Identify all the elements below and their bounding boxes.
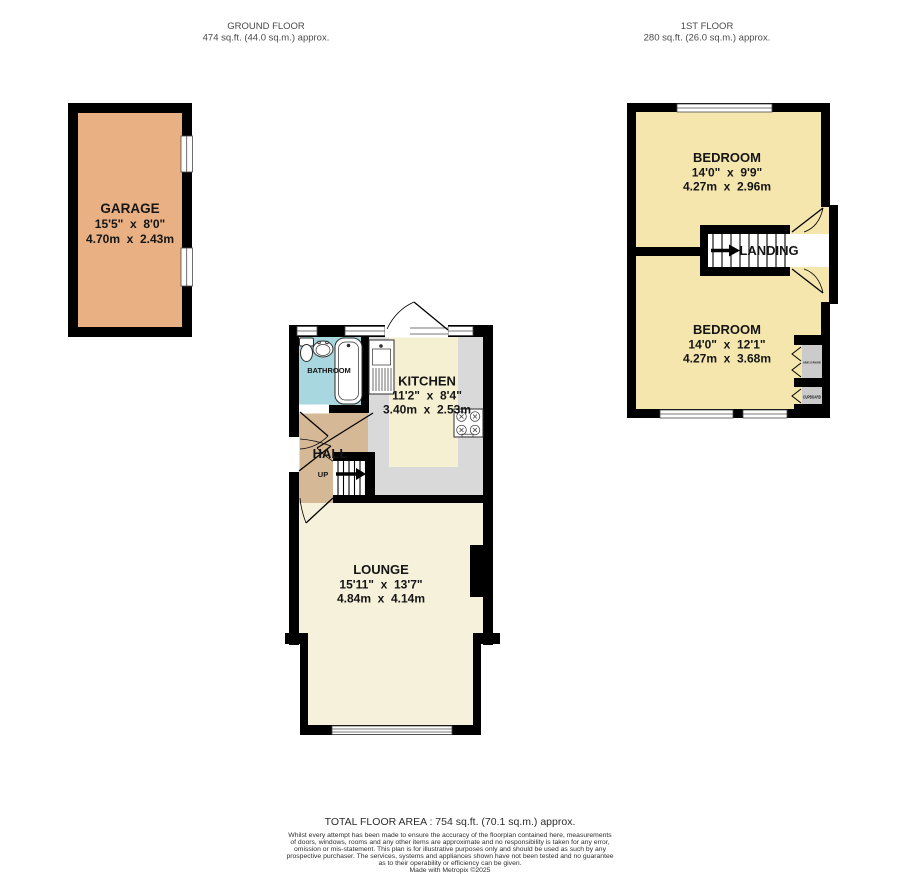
bay-right-wall bbox=[473, 633, 481, 735]
bedroom-back-dims-imperial: 14'0" x 12'1" bbox=[688, 338, 765, 352]
disclaimer-line: omission or mis-statement. This plan is … bbox=[294, 846, 607, 853]
disclaimer-line: Whilst every attempt has been made to en… bbox=[288, 832, 612, 839]
bedroom-back-dims-metric: 4.27m x 3.68m bbox=[683, 352, 771, 366]
kitchen-sink-icon bbox=[369, 340, 394, 394]
kitchen-window-left bbox=[345, 327, 385, 336]
credit-line: Made with Metropix ©2025 bbox=[410, 866, 491, 874]
lounge-bay-window bbox=[332, 726, 452, 735]
stairwell-bottom-wall bbox=[700, 267, 790, 276]
lounge-top-wall bbox=[333, 495, 493, 503]
garage-window-top bbox=[181, 136, 193, 172]
stairs-up-label: UP bbox=[318, 470, 328, 479]
bay-left-wall bbox=[300, 633, 308, 735]
disclaimer-line: prospective purchaser. The services, sys… bbox=[286, 853, 613, 860]
bathroom-bottom-wall bbox=[329, 405, 369, 413]
floorplan-svg: GROUND FLOOR 474 sq.ft. (44.0 sq.m.) app… bbox=[0, 0, 900, 874]
airing-cupboard-label: AIRING CUPBOARD bbox=[803, 361, 821, 365]
garage-window-bottom bbox=[181, 248, 193, 286]
bathroom-label: BATHROOM bbox=[307, 366, 351, 375]
stairwell-top-wall bbox=[700, 225, 790, 234]
lounge-floor bbox=[299, 503, 483, 725]
cupboard-label: CUPBOARD bbox=[803, 395, 821, 400]
bedroom-front-window bbox=[677, 104, 772, 112]
bedroom-front-door-zone bbox=[820, 207, 829, 234]
toilet-icon bbox=[300, 338, 314, 362]
disclaimer-line: as to their operability or efficiency ca… bbox=[378, 860, 521, 867]
basin-icon bbox=[313, 341, 333, 357]
first-floor-area: 280 sq.ft. (26.0 sq.m.) approx. bbox=[644, 33, 771, 44]
ground-floor-plan: BATHROOM KITCHEN 11'2" x 8'4" 3.40m x 2.… bbox=[285, 302, 500, 735]
hall-label: HALL bbox=[313, 446, 348, 461]
disclaimer-line: of doors, windows, rooms and any other i… bbox=[290, 839, 609, 846]
lounge-dims-imperial: 15'11" x 13'7" bbox=[339, 578, 422, 592]
first-floor-plan: AIRING CUPBOARD CUPBOARD bbox=[627, 103, 838, 418]
bedroom-front-dims-imperial: 14'0" x 9'9" bbox=[692, 166, 762, 180]
landing-label: LANDING bbox=[739, 243, 798, 258]
ground-left-wall bbox=[289, 325, 299, 645]
first-floor-title: 1ST FLOOR bbox=[681, 21, 734, 32]
ground-floor-title: GROUND FLOOR bbox=[227, 21, 305, 32]
kitchen-dims-imperial: 11'2" x 8'4" bbox=[392, 389, 462, 403]
bedroom-front-label: BEDROOM bbox=[693, 150, 761, 165]
floorplan-page: GROUND FLOOR 474 sq.ft. (44.0 sq.m.) app… bbox=[0, 0, 900, 874]
kitchen-window-right bbox=[448, 327, 473, 336]
kitchen-dims-metric: 3.40m x 2.53m bbox=[383, 403, 471, 417]
bedroom-back-door-zone bbox=[820, 267, 829, 302]
bedroom-front-dims-metric: 4.27m x 2.96m bbox=[683, 180, 771, 194]
total-floor-area: TOTAL FLOOR AREA : 754 sq.ft. (70.1 sq.m… bbox=[325, 816, 576, 828]
bedroom-divider-wall bbox=[627, 247, 708, 256]
bathroom-window bbox=[297, 327, 317, 336]
kitchen-label: KITCHEN bbox=[398, 374, 456, 389]
bedroom-back-label: BEDROOM bbox=[693, 322, 761, 337]
chimney-breast bbox=[470, 545, 493, 597]
stairwell-left-wall bbox=[700, 225, 708, 276]
ground-stairs bbox=[333, 461, 366, 495]
garage-dims-imperial: 15'5" x 8'0" bbox=[95, 217, 165, 231]
bedroom-back-window-left bbox=[660, 410, 733, 418]
landing-bump-wall bbox=[828, 205, 838, 304]
garage-label: GARAGE bbox=[100, 201, 159, 216]
lounge-label: LOUNGE bbox=[353, 562, 409, 577]
bedroom-back-window-right bbox=[743, 410, 787, 418]
lounge-dims-metric: 4.84m x 4.14m bbox=[337, 592, 425, 606]
ground-floor-area: 474 sq.ft. (44.0 sq.m.) approx. bbox=[203, 33, 330, 44]
room-garage: GARAGE 15'5" x 8'0" 4.70m x 2.43m bbox=[68, 103, 193, 337]
garage-dims-metric: 4.70m x 2.43m bbox=[86, 232, 174, 246]
